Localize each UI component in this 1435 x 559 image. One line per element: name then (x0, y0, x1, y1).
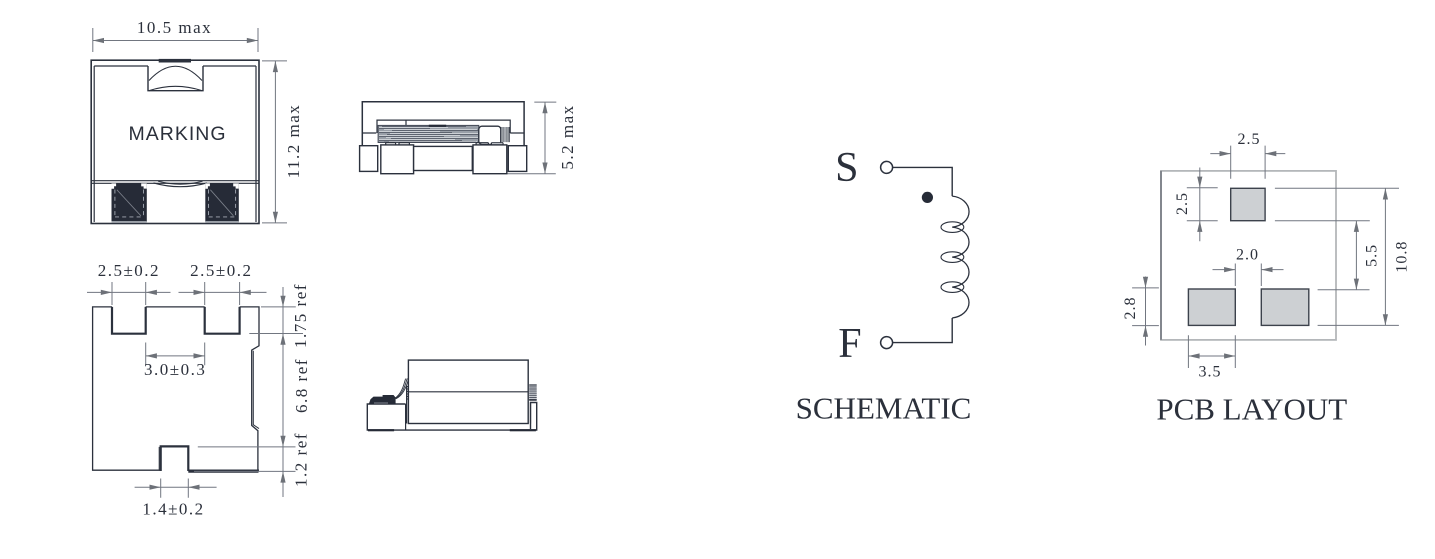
svg-text:SCHEMATIC: SCHEMATIC (796, 390, 972, 425)
svg-text:2.5±0.2: 2.5±0.2 (190, 261, 252, 280)
svg-text:2.5±0.2: 2.5±0.2 (98, 261, 160, 280)
svg-text:PCB LAYOUT: PCB LAYOUT (1156, 391, 1347, 426)
svg-text:F: F (838, 321, 861, 367)
svg-text:1.2 ref: 1.2 ref (292, 432, 311, 487)
svg-text:6.8 ref: 6.8 ref (292, 358, 311, 413)
svg-text:5.5: 5.5 (1364, 244, 1381, 267)
svg-text:11.2 max: 11.2 max (284, 104, 303, 179)
svg-text:5.2 max: 5.2 max (558, 104, 577, 169)
svg-text:10.8: 10.8 (1394, 241, 1411, 273)
svg-text:2.5: 2.5 (1238, 131, 1261, 148)
svg-text:1.75 ref: 1.75 ref (291, 283, 310, 348)
svg-text:3.5: 3.5 (1199, 364, 1222, 381)
svg-text:2.5: 2.5 (1174, 192, 1191, 215)
svg-text:MARKING: MARKING (128, 123, 226, 145)
svg-text:3.0±0.3: 3.0±0.3 (144, 360, 206, 379)
svg-text:1.4±0.2: 1.4±0.2 (142, 500, 204, 519)
svg-text:S: S (835, 145, 858, 191)
svg-text:10.5 max: 10.5 max (137, 18, 212, 37)
svg-text:2.0: 2.0 (1236, 247, 1259, 264)
svg-text:2.8: 2.8 (1122, 297, 1139, 320)
